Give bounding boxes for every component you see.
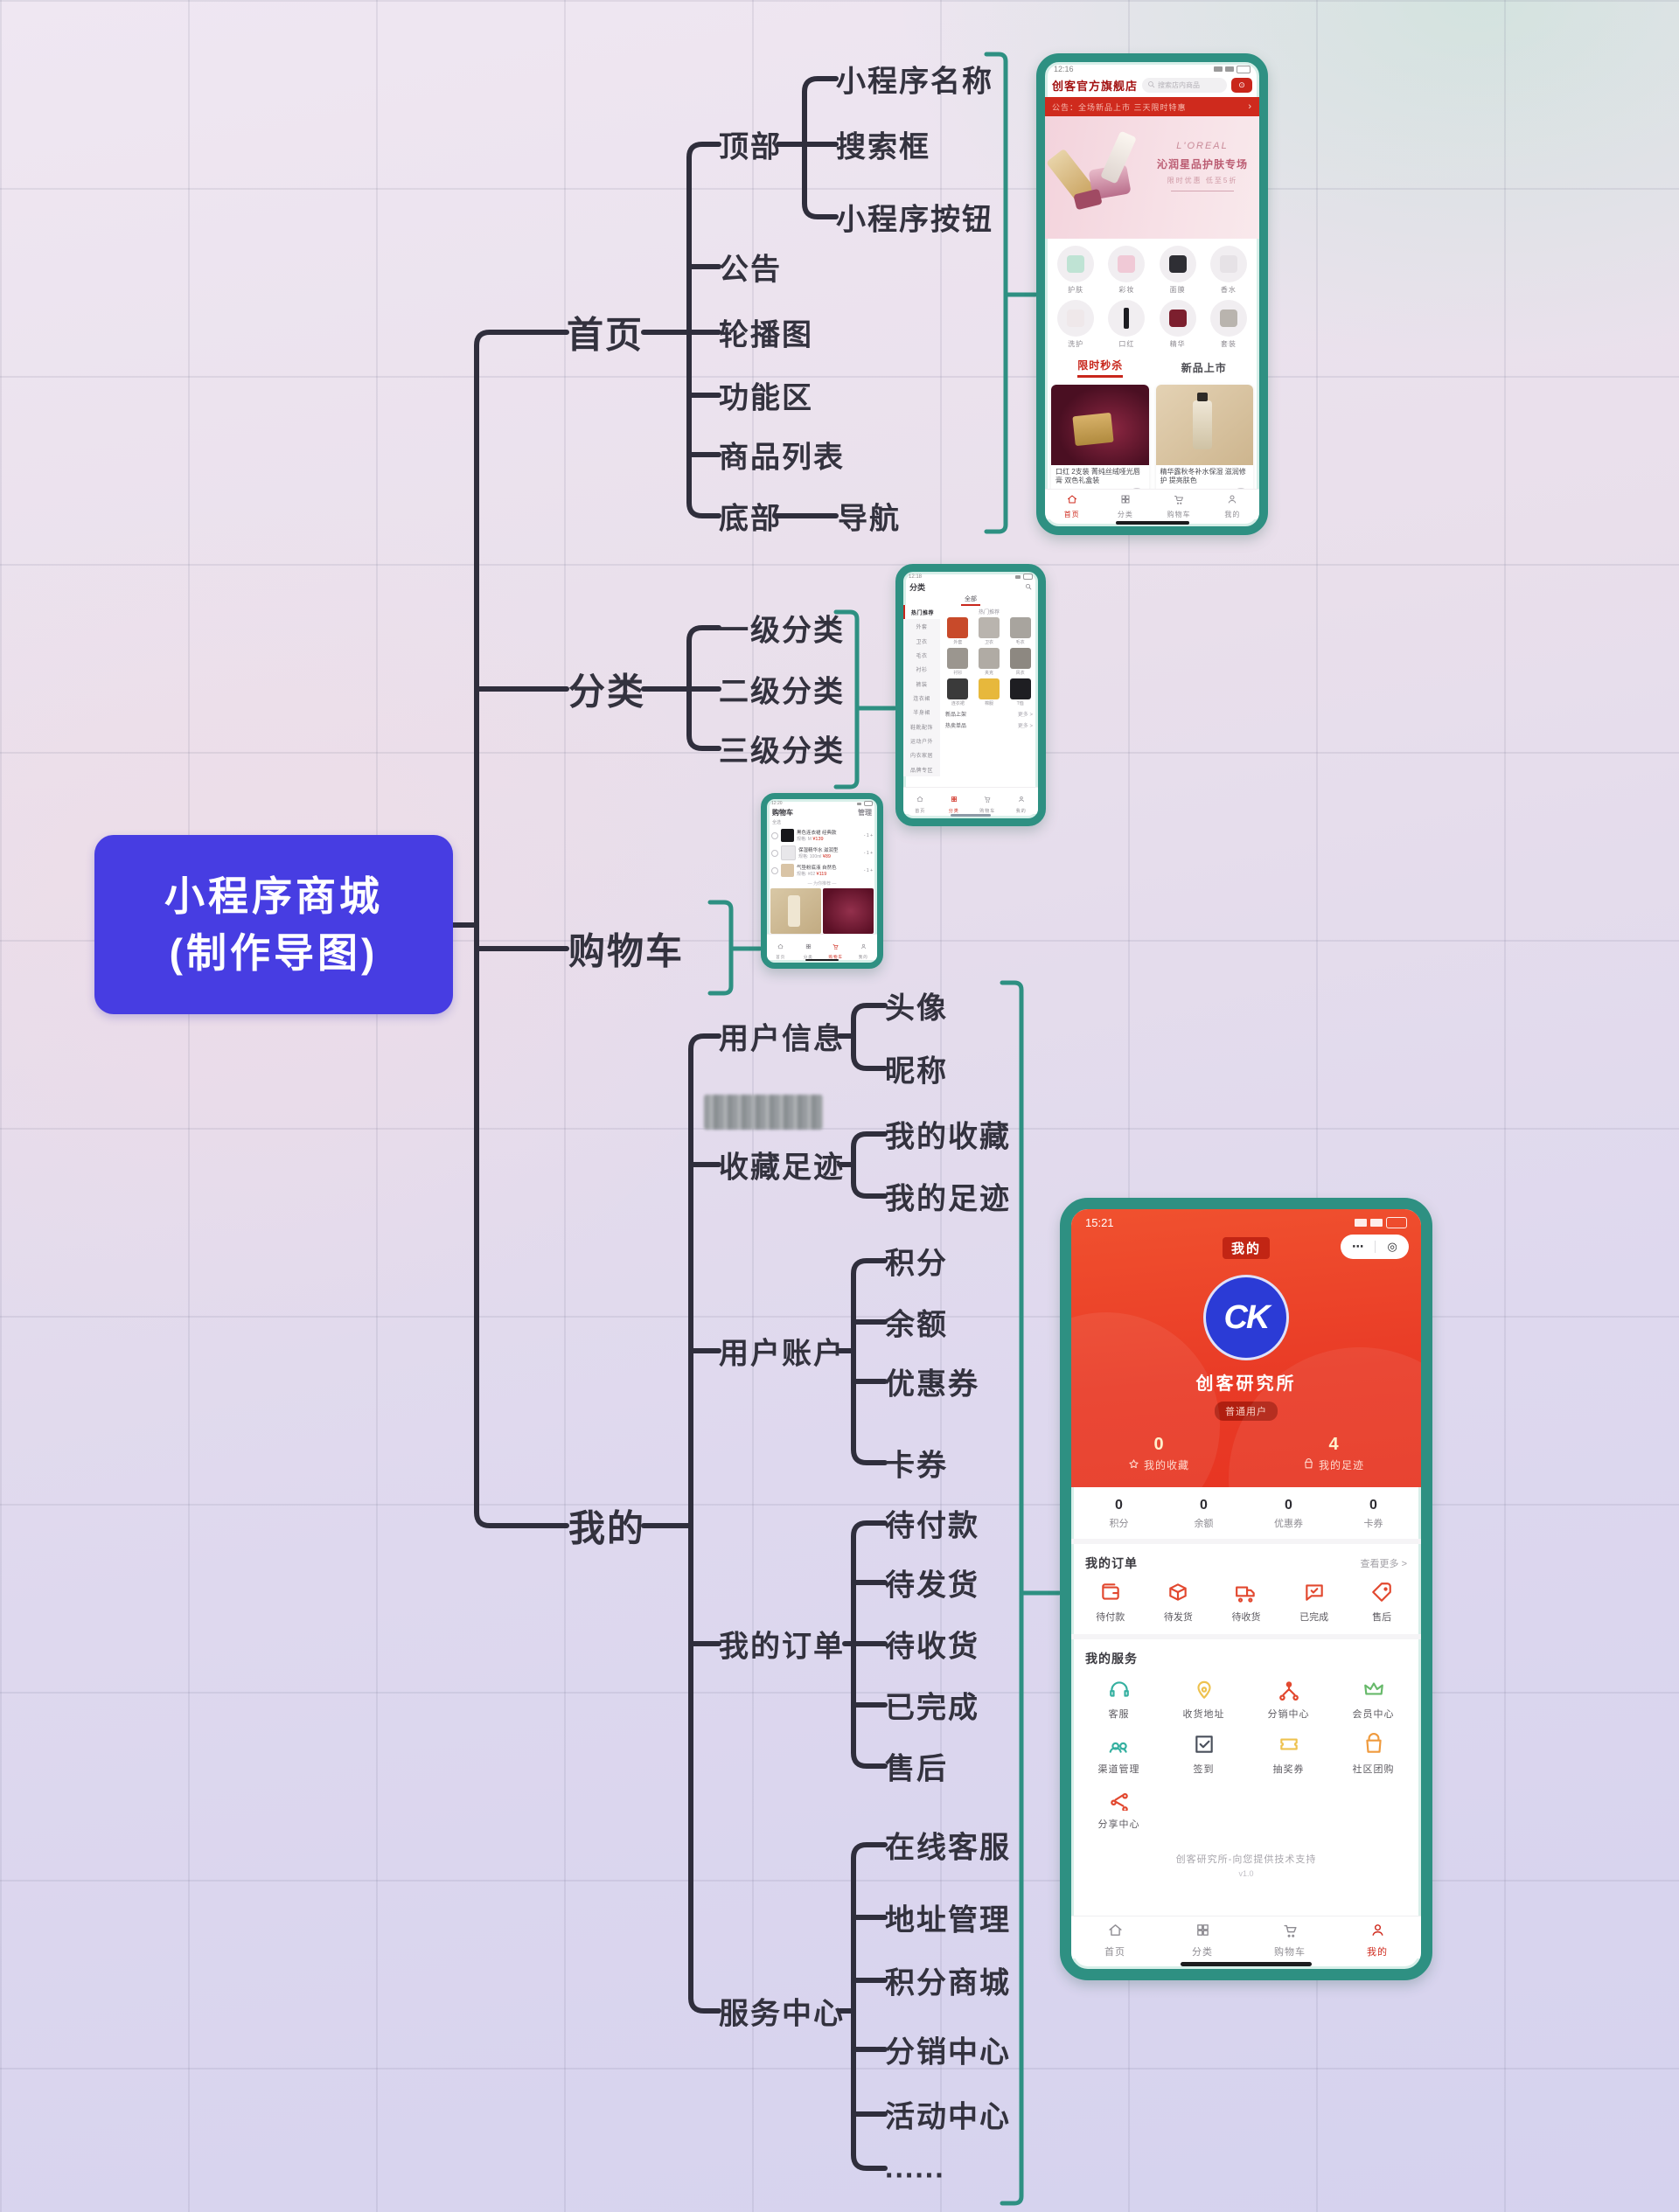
node-wode[interactable]: 我的: [568, 1499, 645, 1553]
node-fuwuzhongxin[interactable]: 服务中心: [719, 1990, 845, 2033]
banner-carousel[interactable]: L'OREAL 沁润星品护肤专场 限时优惠 低至5折: [1045, 116, 1259, 239]
node-kaquan[interactable]: 卡券: [885, 1442, 948, 1485]
account-stat[interactable]: 0积分: [1076, 1498, 1161, 1530]
node-daifukuan[interactable]: 待付款: [885, 1502, 979, 1545]
sidebar-category-item[interactable]: 裤装: [903, 677, 940, 691]
category-sidebar: 热门推荐外套卫衣毛衣衬衫裤装连衣裙半身裙鞋靴配饰运动户外内衣家居品牌专区: [903, 605, 940, 776]
node-daohang[interactable]: 导航: [838, 495, 901, 538]
node-fenxiaozhongxin[interactable]: 分销中心: [885, 2028, 1011, 2071]
node-wodedingdan[interactable]: 我的订单: [719, 1623, 845, 1666]
more-icon: ⋯: [1352, 1240, 1363, 1254]
node-xcx_name[interactable]: 小程序名称: [836, 58, 993, 101]
sidebar-category-item[interactable]: 品牌专区: [903, 762, 940, 776]
cart-item-row[interactable]: 保湿精华水 滋润型规格: 100ml ¥89- 1 +: [767, 844, 877, 862]
node-shouye[interactable]: 首页: [567, 306, 644, 359]
flash-sale-tab[interactable]: 限时秒杀: [1077, 358, 1123, 378]
node-youhuiquan[interactable]: 优惠券: [885, 1360, 979, 1403]
banner-brand: L'OREAL: [1154, 141, 1251, 151]
nav-item-home[interactable]: 首页: [1045, 490, 1098, 519]
node-huodongzhongxin[interactable]: 活动中心: [885, 2093, 1011, 2136]
service-item[interactable]: 收货地址: [1161, 1678, 1246, 1721]
nav-item-user[interactable]: 我的: [1334, 1916, 1421, 1958]
home-icon: [777, 938, 784, 954]
page-title: 我的: [1223, 1237, 1270, 1259]
announcement-bar[interactable]: 公告：全场新品上市 三天限时特惠 ›: [1045, 97, 1259, 116]
service-item[interactable]: 客服: [1076, 1678, 1161, 1721]
orders-section-header: 我的订单 查看更多 >: [1071, 1544, 1421, 1577]
nav-item-grid[interactable]: 分类: [1098, 490, 1152, 519]
node-yonghuzhanghu[interactable]: 用户账户: [719, 1330, 845, 1373]
node-wodezuji[interactable]: 我的足迹: [885, 1175, 1011, 1218]
services-grid: 客服收货地址分销中心会员中心渠道管理签到抽奖券社区团购分享中心: [1071, 1673, 1421, 1840]
nav-item-user[interactable]: 我的: [850, 935, 878, 960]
store-name: 创客官方旗舰店: [1052, 77, 1138, 94]
search-icon[interactable]: [1025, 583, 1032, 592]
profile-header: 15:21 我的 ⋯ ◎ CK 创客研究所 普通用户 0我的收藏4我的足迹: [1071, 1209, 1421, 1487]
cart-item-row[interactable]: 黑色连衣裙 经典款规格: M ¥139- 1 +: [767, 827, 877, 844]
item-checkbox[interactable]: [771, 850, 778, 857]
node-shoucangzuji[interactable]: 收藏足迹: [719, 1144, 845, 1186]
share-icon: [1108, 1788, 1131, 1813]
home-indicator-bar: [805, 959, 839, 961]
store-header: 创客官方旗舰店 搜索店内商品 ⊙: [1045, 73, 1259, 97]
nav-item-grid[interactable]: 分类: [937, 788, 972, 814]
category-grid-item[interactable]: T恤: [1006, 678, 1035, 706]
sidebar-category-item[interactable]: 衬衫: [903, 662, 940, 676]
headset-icon: [1108, 1678, 1131, 1703]
category-grid-item[interactable]: 风衣: [1006, 648, 1035, 676]
category-grid-item[interactable]: 夹克: [975, 648, 1004, 676]
cart-icon: [1174, 493, 1184, 509]
grid-icon: [805, 938, 812, 954]
chatcheck-icon: [1303, 1581, 1326, 1606]
service-item[interactable]: 渠道管理: [1076, 1733, 1161, 1776]
quantity-stepper[interactable]: - 1 +: [864, 833, 873, 838]
sidebar-category-item[interactable]: 连衣裙: [903, 691, 940, 705]
account-stat[interactable]: 0卡券: [1331, 1498, 1416, 1530]
ticket-icon: [1278, 1733, 1300, 1758]
phone-home-screenshot: 12:16 创客官方旗舰店 搜索店内商品 ⊙ 公告：全场新品上市 三天限时特惠 …: [1036, 53, 1268, 535]
node-shangpinliebiao[interactable]: 商品列表: [719, 434, 845, 476]
sidebar-category-item[interactable]: 毛衣: [903, 648, 940, 662]
service-item[interactable]: 分销中心: [1246, 1678, 1331, 1721]
tech-support-footer: 创客研究所-向您提供技术支持 v1.0: [1071, 1852, 1421, 1878]
bottom-nav: 首页分类购物车我的: [903, 787, 1038, 814]
node-yue[interactable]: 余额: [885, 1301, 948, 1344]
miniprogram-capsule-button[interactable]: ⊙: [1231, 78, 1252, 93]
nav-item-grid[interactable]: 分类: [1159, 1916, 1246, 1958]
home-indicator-bar: [1181, 1962, 1312, 1966]
item-checkbox[interactable]: [771, 867, 778, 874]
root-node-line1: 小程序商城: [164, 868, 383, 924]
box-icon: [1167, 1581, 1189, 1606]
node-jifenshangcheng[interactable]: 积分商城: [885, 1959, 1011, 2002]
status-time: 15:21: [1085, 1216, 1114, 1229]
new-arrivals-tab[interactable]: 新品上市: [1181, 360, 1227, 375]
item-checkbox[interactable]: [771, 832, 778, 839]
network-icon: [1278, 1678, 1300, 1703]
status-bar: 15:21: [1071, 1209, 1421, 1229]
wechat-capsule[interactable]: ⋯ ◎: [1341, 1235, 1409, 1259]
order-status-item[interactable]: 待付款: [1076, 1581, 1145, 1624]
home-icon: [916, 791, 923, 807]
services-title: 我的服务: [1085, 1650, 1138, 1667]
category-list-row[interactable]: 热卖单品更多 >: [944, 718, 1035, 729]
grid-icon: [1195, 1923, 1210, 1942]
node-daishouhuo[interactable]: 待收货: [885, 1623, 979, 1666]
phone-cart-screenshot: 12:20 购物车 管理 全选 黑色连衣裙 经典款规格: M ¥139- 1 +…: [761, 793, 883, 969]
status-bar: 12:20: [767, 799, 877, 806]
view-more-link[interactable]: 查看更多 >: [1361, 1556, 1407, 1570]
category-header: 分类: [903, 580, 1038, 595]
page-title: 购物车: [772, 808, 793, 817]
tag-icon: [1370, 1581, 1393, 1606]
sidebar-category-item[interactable]: 热门推荐: [903, 605, 940, 619]
sidebar-category-item[interactable]: 运动户外: [903, 734, 940, 748]
quick-category-grid: 护肤彩妆面膜香水洗护口红精华套装: [1045, 239, 1259, 351]
recommend-product-image[interactable]: [823, 888, 874, 934]
home-indicator-bar: [951, 814, 991, 817]
nav-item-grid[interactable]: 分类: [795, 935, 823, 960]
node-zaixiankefu[interactable]: 在线客服: [885, 1824, 1011, 1867]
node-sanji[interactable]: 三级分类: [719, 727, 845, 770]
crown-icon: [1362, 1678, 1385, 1703]
node-touxiang[interactable]: 头像: [885, 984, 948, 1027]
quick-category-item[interactable]: 面膜: [1153, 246, 1203, 295]
search-input[interactable]: 搜索店内商品: [1142, 78, 1227, 93]
truck-icon: [1235, 1581, 1258, 1606]
orders-title: 我的订单: [1085, 1555, 1138, 1572]
status-bar: 12:16: [1045, 62, 1259, 73]
sidebar-category-item[interactable]: 半身裙: [903, 705, 940, 719]
sidebar-category-item[interactable]: 卫衣: [903, 634, 940, 648]
category-grid-item[interactable]: 卫衣: [975, 617, 1004, 645]
node-xcx_btn[interactable]: 小程序按钮: [836, 196, 993, 239]
nav-item-home[interactable]: 首页: [903, 788, 937, 814]
quick-category-item[interactable]: 护肤: [1050, 246, 1101, 295]
category-grid-item[interactable]: 外套: [944, 617, 972, 645]
node-nicheng[interactable]: 昵称: [885, 1047, 948, 1090]
user-icon: [860, 938, 867, 954]
banner-text: L'OREAL 沁润星品护肤专场 限时优惠 低至5折: [1154, 141, 1251, 191]
service-item[interactable]: 社区团购: [1331, 1733, 1416, 1776]
bottom-nav: 首页分类购物车我的: [1071, 1916, 1421, 1958]
account-stats-row: 0积分0余额0优惠券0卡券: [1071, 1487, 1421, 1544]
home-icon: [1108, 1923, 1123, 1942]
announcement-text: 公告：全场新品上市 三天限时特惠: [1052, 101, 1187, 113]
mindmap-canvas: 小程序商城 (制作导图) 首页顶部小程序名称搜索框小程序按钮公告轮播图功能区商品…: [0, 0, 1679, 2212]
node-dibu[interactable]: 底部: [719, 495, 782, 538]
service-item[interactable]: 会员中心: [1331, 1678, 1416, 1721]
home-icon: [1067, 493, 1077, 509]
category-grid-item[interactable]: 衬衫: [944, 648, 972, 676]
services-section-header: 我的服务: [1071, 1639, 1421, 1673]
nav-item-cart[interactable]: 购物车: [1153, 490, 1206, 519]
user-icon: [1370, 1923, 1385, 1942]
node-shouhou[interactable]: 售后: [885, 1745, 948, 1788]
node-dingbu[interactable]: 顶部: [719, 123, 782, 166]
section-title: 热门推荐: [944, 608, 1035, 616]
category-grid-item[interactable]: 连衣裙: [944, 678, 972, 706]
status-time: 12:18: [909, 574, 922, 580]
category-grid-item[interactable]: 棉服: [975, 678, 1004, 706]
sidebar-category-item[interactable]: 内衣家居: [903, 748, 940, 762]
bottom-nav: 首页分类购物车我的: [767, 934, 877, 960]
node-daifahuo[interactable]: 待发货: [885, 1562, 979, 1604]
search-icon: [1147, 80, 1155, 90]
search-placeholder: 搜索店内商品: [1158, 80, 1200, 90]
nav-item-user[interactable]: 我的: [1206, 490, 1259, 519]
service-item[interactable]: 抽奖券: [1246, 1733, 1331, 1776]
status-bar: 12:18: [903, 572, 1038, 580]
item-thumbnail: [781, 845, 796, 860]
node-gouwuche[interactable]: 购物车: [568, 922, 684, 976]
chevron-right-icon: ›: [1248, 101, 1252, 112]
quick-category-item[interactable]: 洗护: [1050, 300, 1101, 349]
nav-item-home[interactable]: 首页: [767, 935, 795, 960]
account-stat[interactable]: 0优惠券: [1246, 1498, 1331, 1530]
group-icon: [1108, 1733, 1131, 1758]
section-headers: 限时秒杀 新品上市: [1045, 351, 1259, 381]
avatar[interactable]: CK: [1203, 1275, 1289, 1360]
user-icon: [1227, 493, 1237, 509]
quick-category-item[interactable]: 彩妆: [1101, 246, 1152, 295]
cart-icon: [984, 791, 991, 807]
sidebar-category-item[interactable]: 外套: [903, 619, 940, 633]
product-title: 口红 2支装 菁纯丝绒哑光唇膏 双色礼盒装: [1051, 465, 1149, 486]
node-ellipsis[interactable]: ......: [885, 2152, 945, 2186]
nav-item-cart[interactable]: 购物车: [971, 788, 1005, 814]
nav-item-cart[interactable]: 购物车: [822, 935, 850, 960]
close-target-icon: ◎: [1387, 1240, 1397, 1254]
order-status-item[interactable]: 售后: [1348, 1581, 1416, 1624]
account-stat[interactable]: 0余额: [1161, 1498, 1246, 1530]
quick-category-item[interactable]: 香水: [1203, 246, 1254, 295]
item-thumbnail: [781, 829, 794, 842]
category-grid-item[interactable]: 毛衣: [1006, 617, 1035, 645]
status-icons: [1214, 66, 1251, 73]
home-indicator-bar: [1116, 521, 1189, 525]
cart-icon: [1283, 1923, 1298, 1942]
grid-icon: [951, 791, 958, 807]
status-time: 12:20: [771, 801, 783, 806]
wallet-icon: [1099, 1581, 1122, 1606]
phone-category-screenshot: 12:18 分类 全部 热门推荐外套卫衣毛衣衬衫裤装连衣裙半身裙鞋靴配饰运动户外…: [895, 564, 1046, 826]
banner-product-image: [1100, 130, 1137, 184]
category-grid: 外套卫衣毛衣衬衫夹克风衣连衣裙棉服T恤: [944, 617, 1035, 706]
node-gonggao[interactable]: 公告: [719, 246, 782, 289]
phone-profile-screenshot: 15:21 我的 ⋯ ◎ CK 创客研究所 普通用户 0我的收藏4我的足迹 0积…: [1060, 1198, 1432, 1980]
banner-subtitle: 限时优惠 低至5折: [1154, 176, 1251, 185]
redacted-watermark: [704, 1095, 823, 1130]
quick-category-item[interactable]: 口红: [1101, 300, 1152, 349]
category-list-row[interactable]: 新品上架更多 >: [944, 706, 1035, 718]
product-title: 精华露秋冬补水保湿 滋润修护 提亮肤色: [1156, 465, 1254, 486]
category-main: 热门推荐 外套卫衣毛衣衬衫夹克风衣连衣裙棉服T恤 新品上架更多 >热卖单品更多 …: [940, 605, 1038, 776]
quick-category-item[interactable]: 套装: [1203, 300, 1254, 349]
product-image: [1156, 385, 1254, 465]
manage-button[interactable]: 管理: [858, 808, 872, 817]
cart-icon: [833, 938, 839, 954]
order-status-item[interactable]: 待收货: [1212, 1581, 1280, 1624]
node-erji[interactable]: 二级分类: [719, 668, 845, 711]
page-title: 分类: [909, 581, 925, 593]
banner-title: 沁润星品护肤专场: [1154, 157, 1251, 171]
quick-category-item[interactable]: 精华: [1153, 300, 1203, 349]
category-tab[interactable]: 全部: [903, 595, 1038, 605]
status-time: 12:16: [1054, 65, 1074, 73]
bottom-nav: 首页分类购物车我的: [1045, 489, 1259, 519]
item-thumbnail: [781, 864, 794, 877]
order-status-item[interactable]: 已完成: [1280, 1581, 1348, 1624]
product-image: [1051, 385, 1149, 465]
pin-icon: [1193, 1678, 1216, 1703]
quantity-stepper[interactable]: - 1 +: [864, 868, 873, 873]
node-yiwancheng[interactable]: 已完成: [885, 1684, 979, 1727]
recommend-images: [767, 888, 877, 934]
nav-item-user[interactable]: 我的: [1005, 788, 1039, 814]
node-gongnengqu[interactable]: 功能区: [719, 374, 813, 417]
cart-header: 购物车 管理: [767, 806, 877, 819]
order-status-item[interactable]: 待发货: [1145, 1581, 1213, 1624]
node-wodeshoucang[interactable]: 我的收藏: [885, 1113, 1011, 1156]
service-item[interactable]: 签到: [1161, 1733, 1246, 1776]
recommend-divider: — 为你推荐 —: [767, 879, 877, 888]
node-yiji[interactable]: 一级分类: [719, 607, 845, 650]
grid-icon: [1120, 493, 1131, 509]
node-dizhiguanli[interactable]: 地址管理: [885, 1896, 1011, 1939]
nav-item-home[interactable]: 首页: [1071, 1916, 1159, 1958]
root-node[interactable]: 小程序商城 (制作导图): [94, 835, 453, 1014]
node-jifen[interactable]: 积分: [885, 1240, 948, 1283]
user-icon: [1018, 791, 1025, 807]
node-fenlei[interactable]: 分类: [568, 663, 645, 716]
nav-item-cart[interactable]: 购物车: [1246, 1916, 1334, 1958]
select-all-row[interactable]: 全选: [767, 819, 877, 827]
node-sousuokuang[interactable]: 搜索框: [836, 123, 930, 166]
root-node-line2: (制作导图): [170, 925, 379, 981]
node-yonghuxinxi[interactable]: 用户信息: [719, 1015, 845, 1058]
sidebar-category-item[interactable]: 鞋靴配饰: [903, 720, 940, 734]
node-lunbotu[interactable]: 轮播图: [719, 311, 813, 354]
bag-icon: [1362, 1733, 1385, 1758]
quantity-stepper[interactable]: - 1 +: [864, 851, 873, 856]
cart-item-row[interactable]: 气垫粉底液 自然色规格: #02 ¥119- 1 +: [767, 862, 877, 879]
recommend-product-image[interactable]: [770, 888, 821, 934]
order-status-row: 待付款待发货待收货已完成售后: [1071, 1577, 1421, 1639]
checksq-icon: [1193, 1733, 1216, 1758]
service-item[interactable]: 分享中心: [1076, 1788, 1161, 1831]
